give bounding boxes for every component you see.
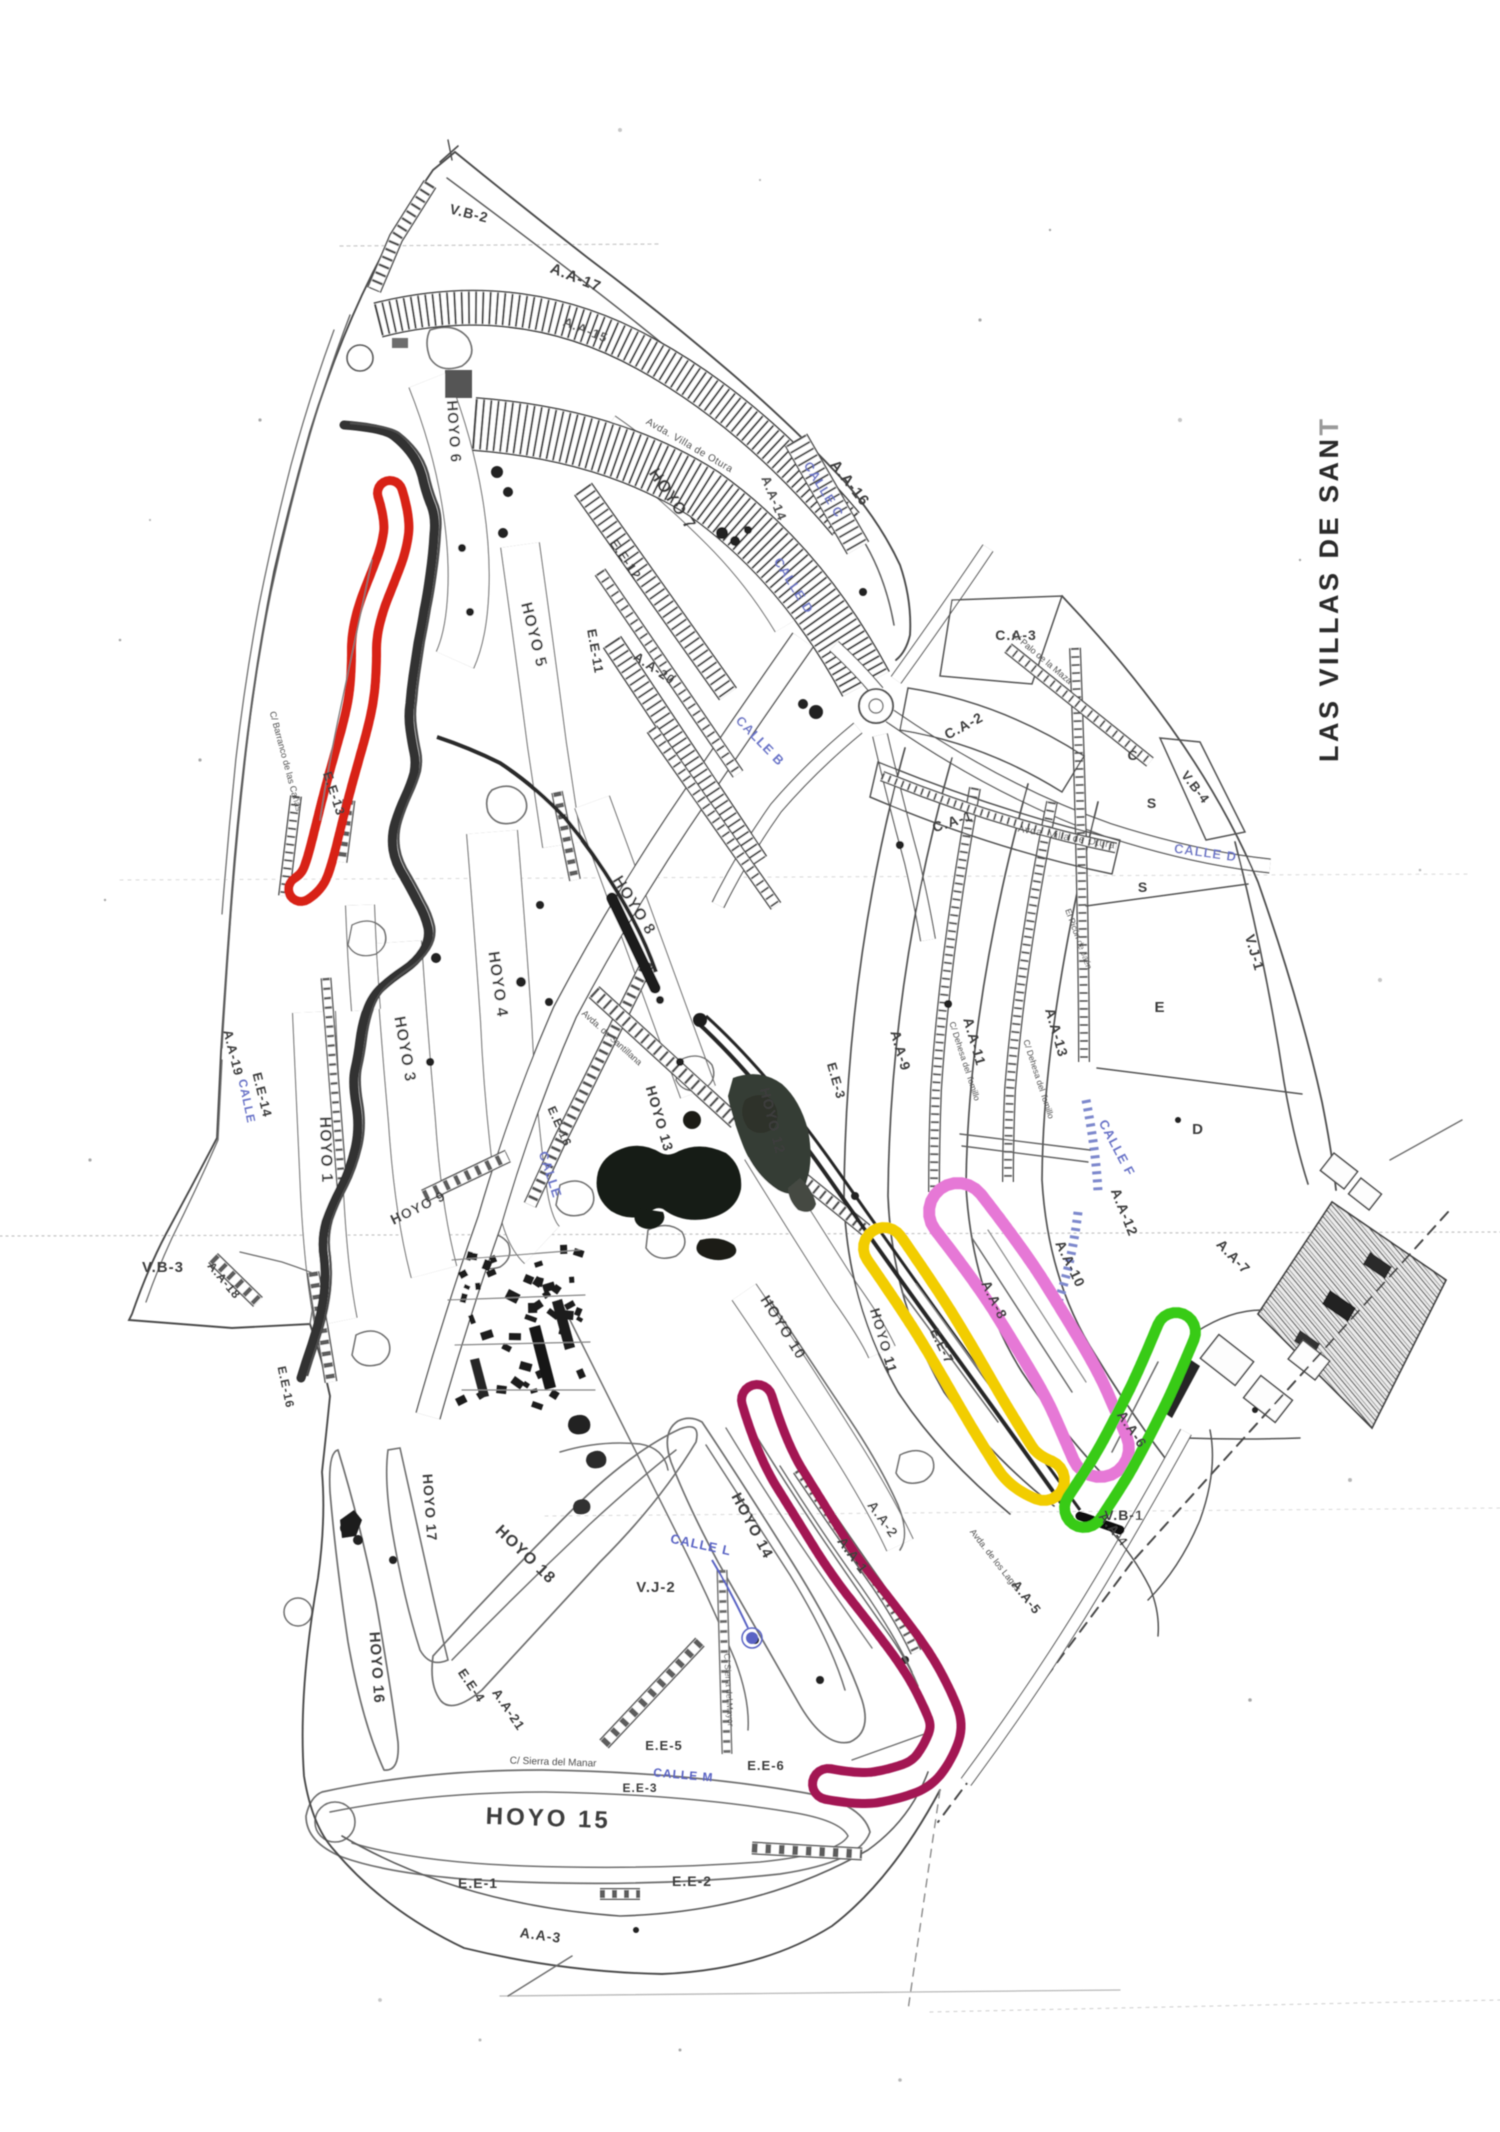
svg-text:HOYO 15: HOYO 15 xyxy=(485,1803,611,1834)
svg-text:LAS VILLAS DE SANT: LAS VILLAS DE SANT xyxy=(1314,415,1344,762)
svg-text:V.B-3: V.B-3 xyxy=(142,1259,184,1276)
svg-text:V.J-2: V.J-2 xyxy=(636,1579,675,1596)
svg-text:E: E xyxy=(1154,999,1165,1016)
svg-text:D: D xyxy=(1192,1121,1204,1138)
svg-text:HOYO 1: HOYO 1 xyxy=(316,1116,335,1183)
svg-text:C: C xyxy=(1127,747,1138,763)
svg-text:S: S xyxy=(1147,795,1157,811)
svg-text:V.B-1: V.B-1 xyxy=(1104,1507,1144,1523)
svg-text:S: S xyxy=(1138,879,1148,895)
svg-text:E.E-6: E.E-6 xyxy=(747,1758,785,1773)
svg-text:E.E-3: E.E-3 xyxy=(622,1781,657,1795)
svg-text:E.E-2: E.E-2 xyxy=(672,1873,712,1889)
svg-text:E.E-5: E.E-5 xyxy=(645,1738,683,1753)
svg-text:E.E-1: E.E-1 xyxy=(458,1875,498,1891)
